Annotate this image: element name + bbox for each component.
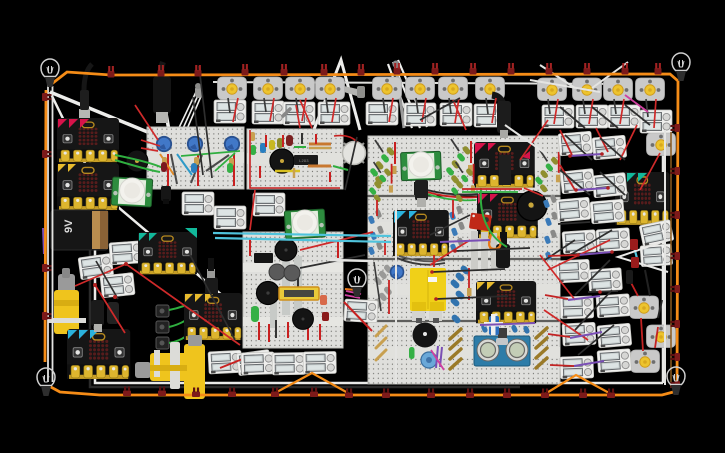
svg-text:L293: L293 (299, 160, 309, 164)
svg-text:9V: 9V (63, 219, 75, 233)
